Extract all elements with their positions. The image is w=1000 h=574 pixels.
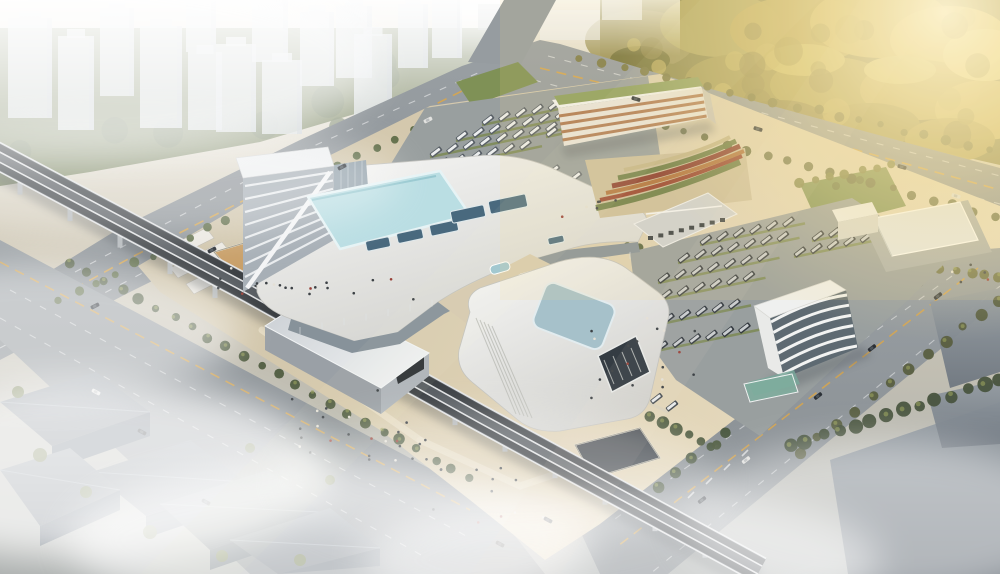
architectural-rendering: Aerial architectural rendering of a tran… <box>0 0 1000 574</box>
aerial-rendering-canvas <box>0 0 1000 574</box>
